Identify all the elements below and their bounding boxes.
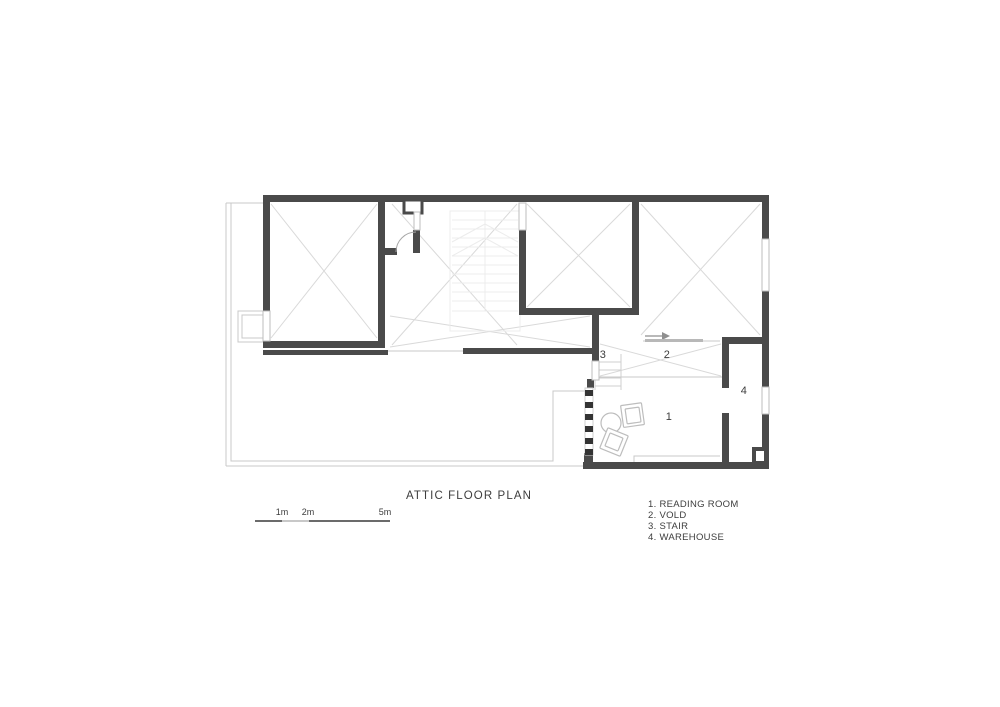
louver-frame [585,388,593,455]
legend-item-reading-room: 1. READING ROOM [648,499,739,510]
reading-room-furniture [600,403,645,457]
wall-room-a-right [378,202,385,348]
floor-plan-page: 1 2 3 4 ATTIC FLOOR PLAN 1m 2m 5m 1. REA… [0,0,1000,707]
wall-stair3-upper [592,315,599,361]
wall-parapet-left [263,350,388,355]
drawing-title: ATTIC FLOOR PLAN [406,490,532,502]
terrace-outline-inner [231,203,586,461]
wall-right-outer-upper [762,195,769,239]
wall-middle-room-bottom [519,308,639,315]
window-room-a-left [263,311,270,341]
wall-right-outer-middle [762,291,769,387]
walls [263,195,769,469]
louver-wall [585,388,593,455]
wall-room-divider [632,202,639,315]
window-stair-hall [519,203,526,230]
legend-item-stair: 3. STAIR [648,521,688,532]
terrace-outline [226,203,722,466]
scale-bar-labels: 1m 2m 5m [276,507,392,517]
room-label-void: 2 [664,349,671,361]
top-wall-niche [404,200,422,213]
wall-warehouse-left-upper [722,337,729,388]
armchair-1-cushion [625,407,641,424]
louver-slat [585,426,593,432]
room-label-warehouse: 4 [741,385,748,397]
wall-top [263,195,769,202]
louver-slat [585,390,593,396]
armchair-1 [621,403,645,428]
wall-parapet-right [463,348,594,354]
title-block: ATTIC FLOOR PLAN [406,490,532,502]
window-above-door [414,212,420,230]
room-label-stair: 3 [600,349,607,361]
bench-outline [634,456,720,462]
warehouse-corner-column-core [756,451,764,461]
wall-right-room-bottom [722,337,769,344]
legend-item-void: 2. VOLD [648,510,687,521]
void-beam [645,339,703,342]
wall-room-a-bottom [263,341,385,348]
room-a-cross [271,204,377,338]
louver-slat [585,402,593,408]
door-stop-stub [385,248,397,255]
louver-slat [585,414,593,420]
legend: 1. READING ROOM 2. VOLD 3. STAIR 4. WARE… [648,499,739,543]
arrow-head-icon [662,332,670,340]
middle-room-cross [527,204,630,307]
void-2-cross [600,344,721,376]
scale-label-5m: 5m [379,507,392,517]
louver-slat [585,449,593,455]
door-leaf [413,230,420,253]
wall-left [263,195,270,311]
window-warehouse [762,387,769,414]
wall-stair-hall-right [519,229,526,315]
legend-item-warehouse: 4. WAREHOUSE [648,532,724,543]
void-direction-marker [645,332,703,342]
scale-label-1m: 1m [276,507,289,517]
scale-bar: 1m 2m 5m [255,507,391,521]
scale-label-2m: 2m [302,507,315,517]
floor-plan-drawing: 1 2 3 4 ATTIC FLOOR PLAN 1m 2m 5m 1. REA… [0,0,1000,707]
armchair-2 [600,428,629,457]
planter-box-inner [242,315,264,338]
louver-slat [585,438,593,444]
wall-reading-room-bottom [583,462,769,469]
wall-warehouse-left-lower [722,413,729,469]
windows [263,203,769,414]
staircase [450,211,520,331]
right-room-cross [641,204,760,335]
window-right-room [762,239,769,291]
window-stair3 [592,361,599,380]
room-label-reading-room: 1 [666,411,673,423]
